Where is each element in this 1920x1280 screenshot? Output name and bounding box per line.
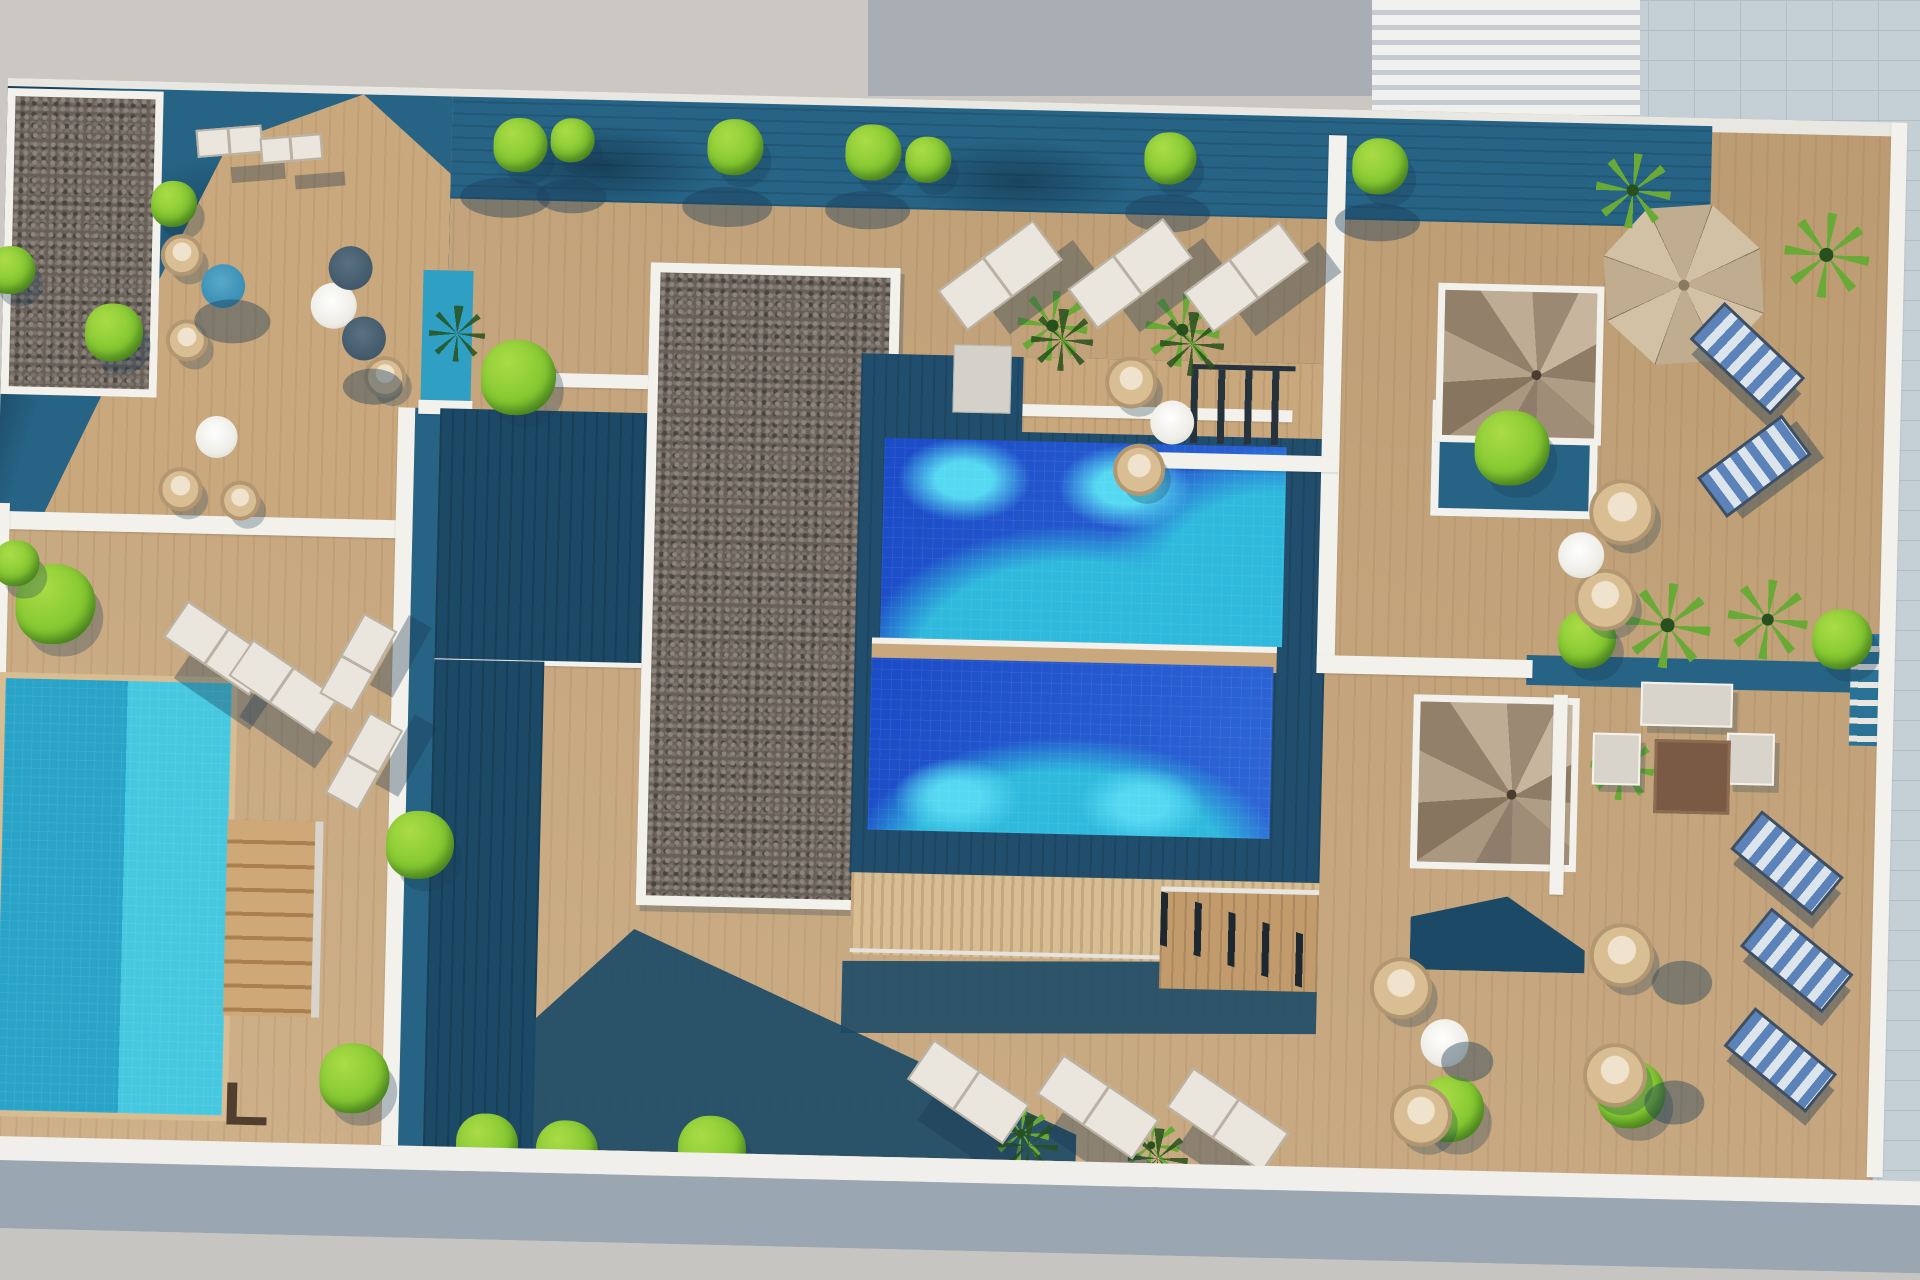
bush bbox=[1352, 138, 1409, 195]
lounger-blue bbox=[1697, 415, 1812, 518]
table-white bbox=[195, 416, 238, 459]
egg-chair bbox=[160, 234, 203, 277]
bush bbox=[0, 246, 36, 295]
lounger-blue bbox=[1689, 301, 1805, 414]
egg-chair bbox=[1369, 956, 1432, 1019]
shadow-blob bbox=[342, 368, 403, 405]
bush bbox=[550, 118, 595, 163]
lounger-blue bbox=[1724, 1007, 1838, 1113]
chair-sq bbox=[1726, 733, 1775, 786]
egg-chair bbox=[1588, 478, 1656, 546]
lounger bbox=[259, 133, 323, 164]
background-roof-dark bbox=[868, 0, 1380, 96]
palm bbox=[1727, 579, 1809, 661]
shadow-blob bbox=[1441, 1041, 1494, 1082]
striped-building-roof bbox=[1372, 0, 1640, 118]
chair-dark bbox=[341, 316, 386, 361]
lounger bbox=[319, 613, 397, 712]
bush bbox=[905, 136, 952, 183]
bush bbox=[319, 1043, 391, 1115]
bush bbox=[707, 119, 764, 176]
palm bbox=[1594, 152, 1671, 229]
shadow-blob bbox=[682, 186, 773, 228]
shadow-blob bbox=[1334, 202, 1420, 242]
palm bbox=[1783, 211, 1870, 298]
bush bbox=[845, 124, 902, 181]
chair-dark bbox=[328, 246, 373, 291]
lounger-blue bbox=[1730, 810, 1844, 916]
egg-chair bbox=[1105, 356, 1158, 409]
bush bbox=[84, 303, 143, 362]
sofa bbox=[1640, 682, 1733, 728]
bush bbox=[385, 810, 455, 880]
rooftop-render-scene bbox=[0, 0, 1920, 1280]
shadow-blob bbox=[1644, 1080, 1705, 1125]
shadow-blob bbox=[536, 178, 607, 214]
main-roof-deck bbox=[0, 78, 1897, 1204]
egg-chair bbox=[158, 467, 203, 512]
palm-dark bbox=[428, 305, 485, 362]
egg-chair bbox=[1589, 923, 1654, 988]
egg-chair bbox=[220, 480, 261, 521]
egg-chair bbox=[1112, 443, 1165, 496]
bush bbox=[480, 339, 557, 416]
chair-sq bbox=[1592, 733, 1641, 786]
bush bbox=[1473, 409, 1550, 486]
ladder bbox=[226, 1082, 267, 1125]
bush bbox=[1812, 609, 1873, 670]
furniture-layer bbox=[0, 78, 1897, 1204]
lounger bbox=[1183, 222, 1308, 333]
bush bbox=[151, 180, 198, 227]
lounger bbox=[907, 1039, 1030, 1144]
shadow-blob bbox=[824, 190, 910, 230]
table-white bbox=[1150, 400, 1195, 445]
lounger bbox=[196, 125, 264, 158]
bush bbox=[493, 117, 548, 172]
palm-dark bbox=[1030, 308, 1093, 371]
table-brown bbox=[1653, 739, 1731, 815]
bush bbox=[1144, 132, 1197, 185]
lounger-blue bbox=[1740, 907, 1854, 1013]
lounger bbox=[325, 712, 403, 811]
palm bbox=[1624, 582, 1711, 669]
shadow-blob bbox=[1652, 960, 1713, 1005]
